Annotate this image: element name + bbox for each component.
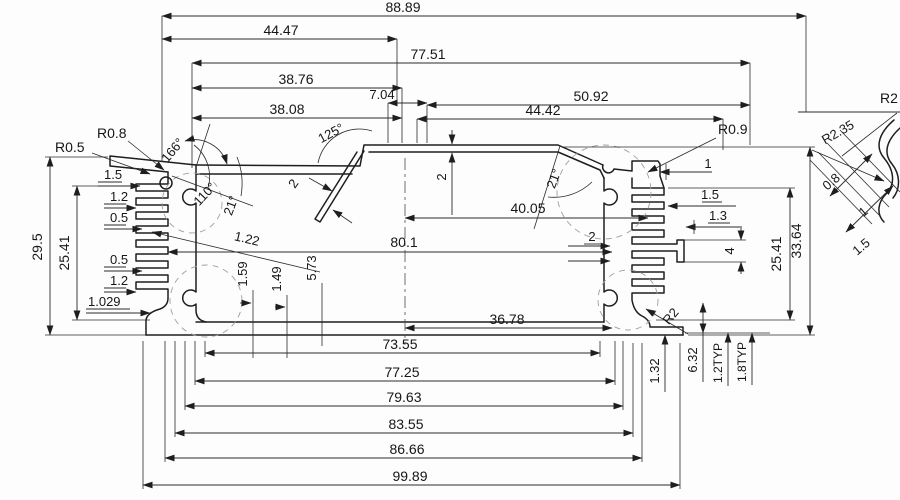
dim-6-32: 6.32: [685, 347, 700, 372]
dim-right-1-5: 1.5: [701, 187, 719, 202]
angle-166: 166°: [158, 135, 187, 165]
detail-circle-top-left: [162, 173, 222, 233]
dim-1-59: 1.59: [235, 261, 250, 286]
dims-top: 88.89 44.47 77.51 38.76 7.04 50.92 38.08…: [162, 0, 806, 168]
diagonal-strut: [315, 151, 364, 222]
angle-125: 125°: [315, 120, 346, 146]
dims-right: R0.9 1 1.5 1.3 4 25.41 33.64: [562, 121, 815, 335]
dim-44-42: 44.42: [525, 102, 560, 118]
dim-right-4: 4: [722, 247, 737, 254]
dim-38-08: 38.08: [269, 101, 304, 117]
dim-1-49: 1.49: [269, 266, 284, 291]
dims-mid: 2 1.22 2 40.05 80.1 2 1.59 1.49 5.73: [152, 130, 648, 358]
dim-r0-5: R0.5: [55, 139, 85, 155]
dim-strut-2: 2: [285, 176, 301, 191]
dim-cover-2: 2: [434, 173, 449, 180]
dim-fin-0-5b: 0.5: [110, 252, 128, 267]
dim-r0-8: R0.8: [97, 125, 127, 141]
dim-detail-r2: R2: [880, 90, 898, 106]
dim-1-32: 1.32: [647, 358, 662, 383]
dim-1-8typ: 1.8TYP: [735, 342, 749, 382]
dim-r2-35: R2.35: [819, 117, 857, 147]
dim-77-51: 77.51: [410, 46, 445, 62]
engineering-drawing: 88.89 44.47 77.51 38.76 7.04 50.92 38.08…: [0, 0, 900, 500]
dim-5-73: 5.73: [304, 255, 319, 280]
right-lip: [603, 161, 664, 188]
dim-1-2typ: 1.2TYP: [711, 343, 725, 383]
dim-33-64: 33.64: [788, 223, 804, 258]
dim-83-55: 83.55: [388, 416, 423, 432]
dim-1-22: 1.22: [233, 228, 261, 248]
dim-38-76: 38.76: [278, 71, 313, 87]
detail-circle-bottom-left: [170, 265, 242, 337]
dim-99-89: 99.89: [392, 468, 427, 484]
drawing-canvas: 88.89 44.47 77.51 38.76 7.04 50.92 38.08…: [0, 0, 900, 500]
dim-73-55: 73.55: [382, 336, 417, 352]
dim-77-25: 77.25: [384, 364, 419, 380]
dim-right-1: 1: [704, 156, 711, 171]
detail-profile-edge-a: [879, 120, 894, 222]
dim-50-92: 50.92: [573, 88, 608, 104]
dim-40-05: 40.05: [510, 200, 545, 216]
dim-88-89: 88.89: [385, 0, 420, 15]
dim-fin-0-5a: 0.5: [110, 210, 128, 225]
dim-29-5: 29.5: [29, 233, 45, 260]
angle-21-left: 21°: [220, 194, 241, 218]
dim-44-47: 44.47: [263, 22, 298, 38]
dim-r0-9: R0.9: [718, 121, 748, 137]
dim-86-66: 86.66: [389, 441, 424, 457]
dim-25-41-right: 25.41: [768, 236, 784, 271]
angle-21-right: 21°: [543, 167, 564, 191]
dims-left: R0.5 R0.8 1.5 1.2 0.5 0.5 1.2 1.029 29.5…: [29, 125, 164, 335]
dim-7-04: 7.04: [369, 87, 394, 102]
right-screw-channels: [604, 178, 617, 322]
dim-1-029: 1.029: [88, 294, 121, 309]
dim-detail-1: 1: [856, 203, 871, 219]
dim-r2-bottom: R2: [659, 305, 681, 327]
top-cover: [196, 145, 604, 178]
dim-79-63: 79.63: [386, 389, 421, 405]
left-fin-wall: [136, 172, 168, 335]
dim-fin-1-2a: 1.2: [110, 189, 128, 204]
dims-bottom-right: 1.32 6.32 1.2TYP 1.8TYP R2: [646, 303, 770, 392]
dim-slot-2: 2: [588, 229, 595, 244]
dim-80-1: 80.1: [390, 234, 417, 250]
dim-fin-1-2b: 1.2: [110, 273, 128, 288]
corner-detail-view: R2 R2.35 0.8 1 1.5: [798, 90, 900, 258]
dim-fin-1-5: 1.5: [104, 167, 122, 182]
dim-right-1-3: 1.3: [709, 208, 727, 223]
dim-36-78: 36.78: [489, 311, 524, 327]
dim-25-41-left: 25.41: [56, 235, 72, 270]
dims-bottom: 36.78 73.55 77.25 79.63 83.55 86.66 99.8…: [143, 311, 680, 489]
detail-profile-edge-b: [887, 128, 900, 198]
dim-detail-1-5: 1.5: [849, 235, 872, 258]
